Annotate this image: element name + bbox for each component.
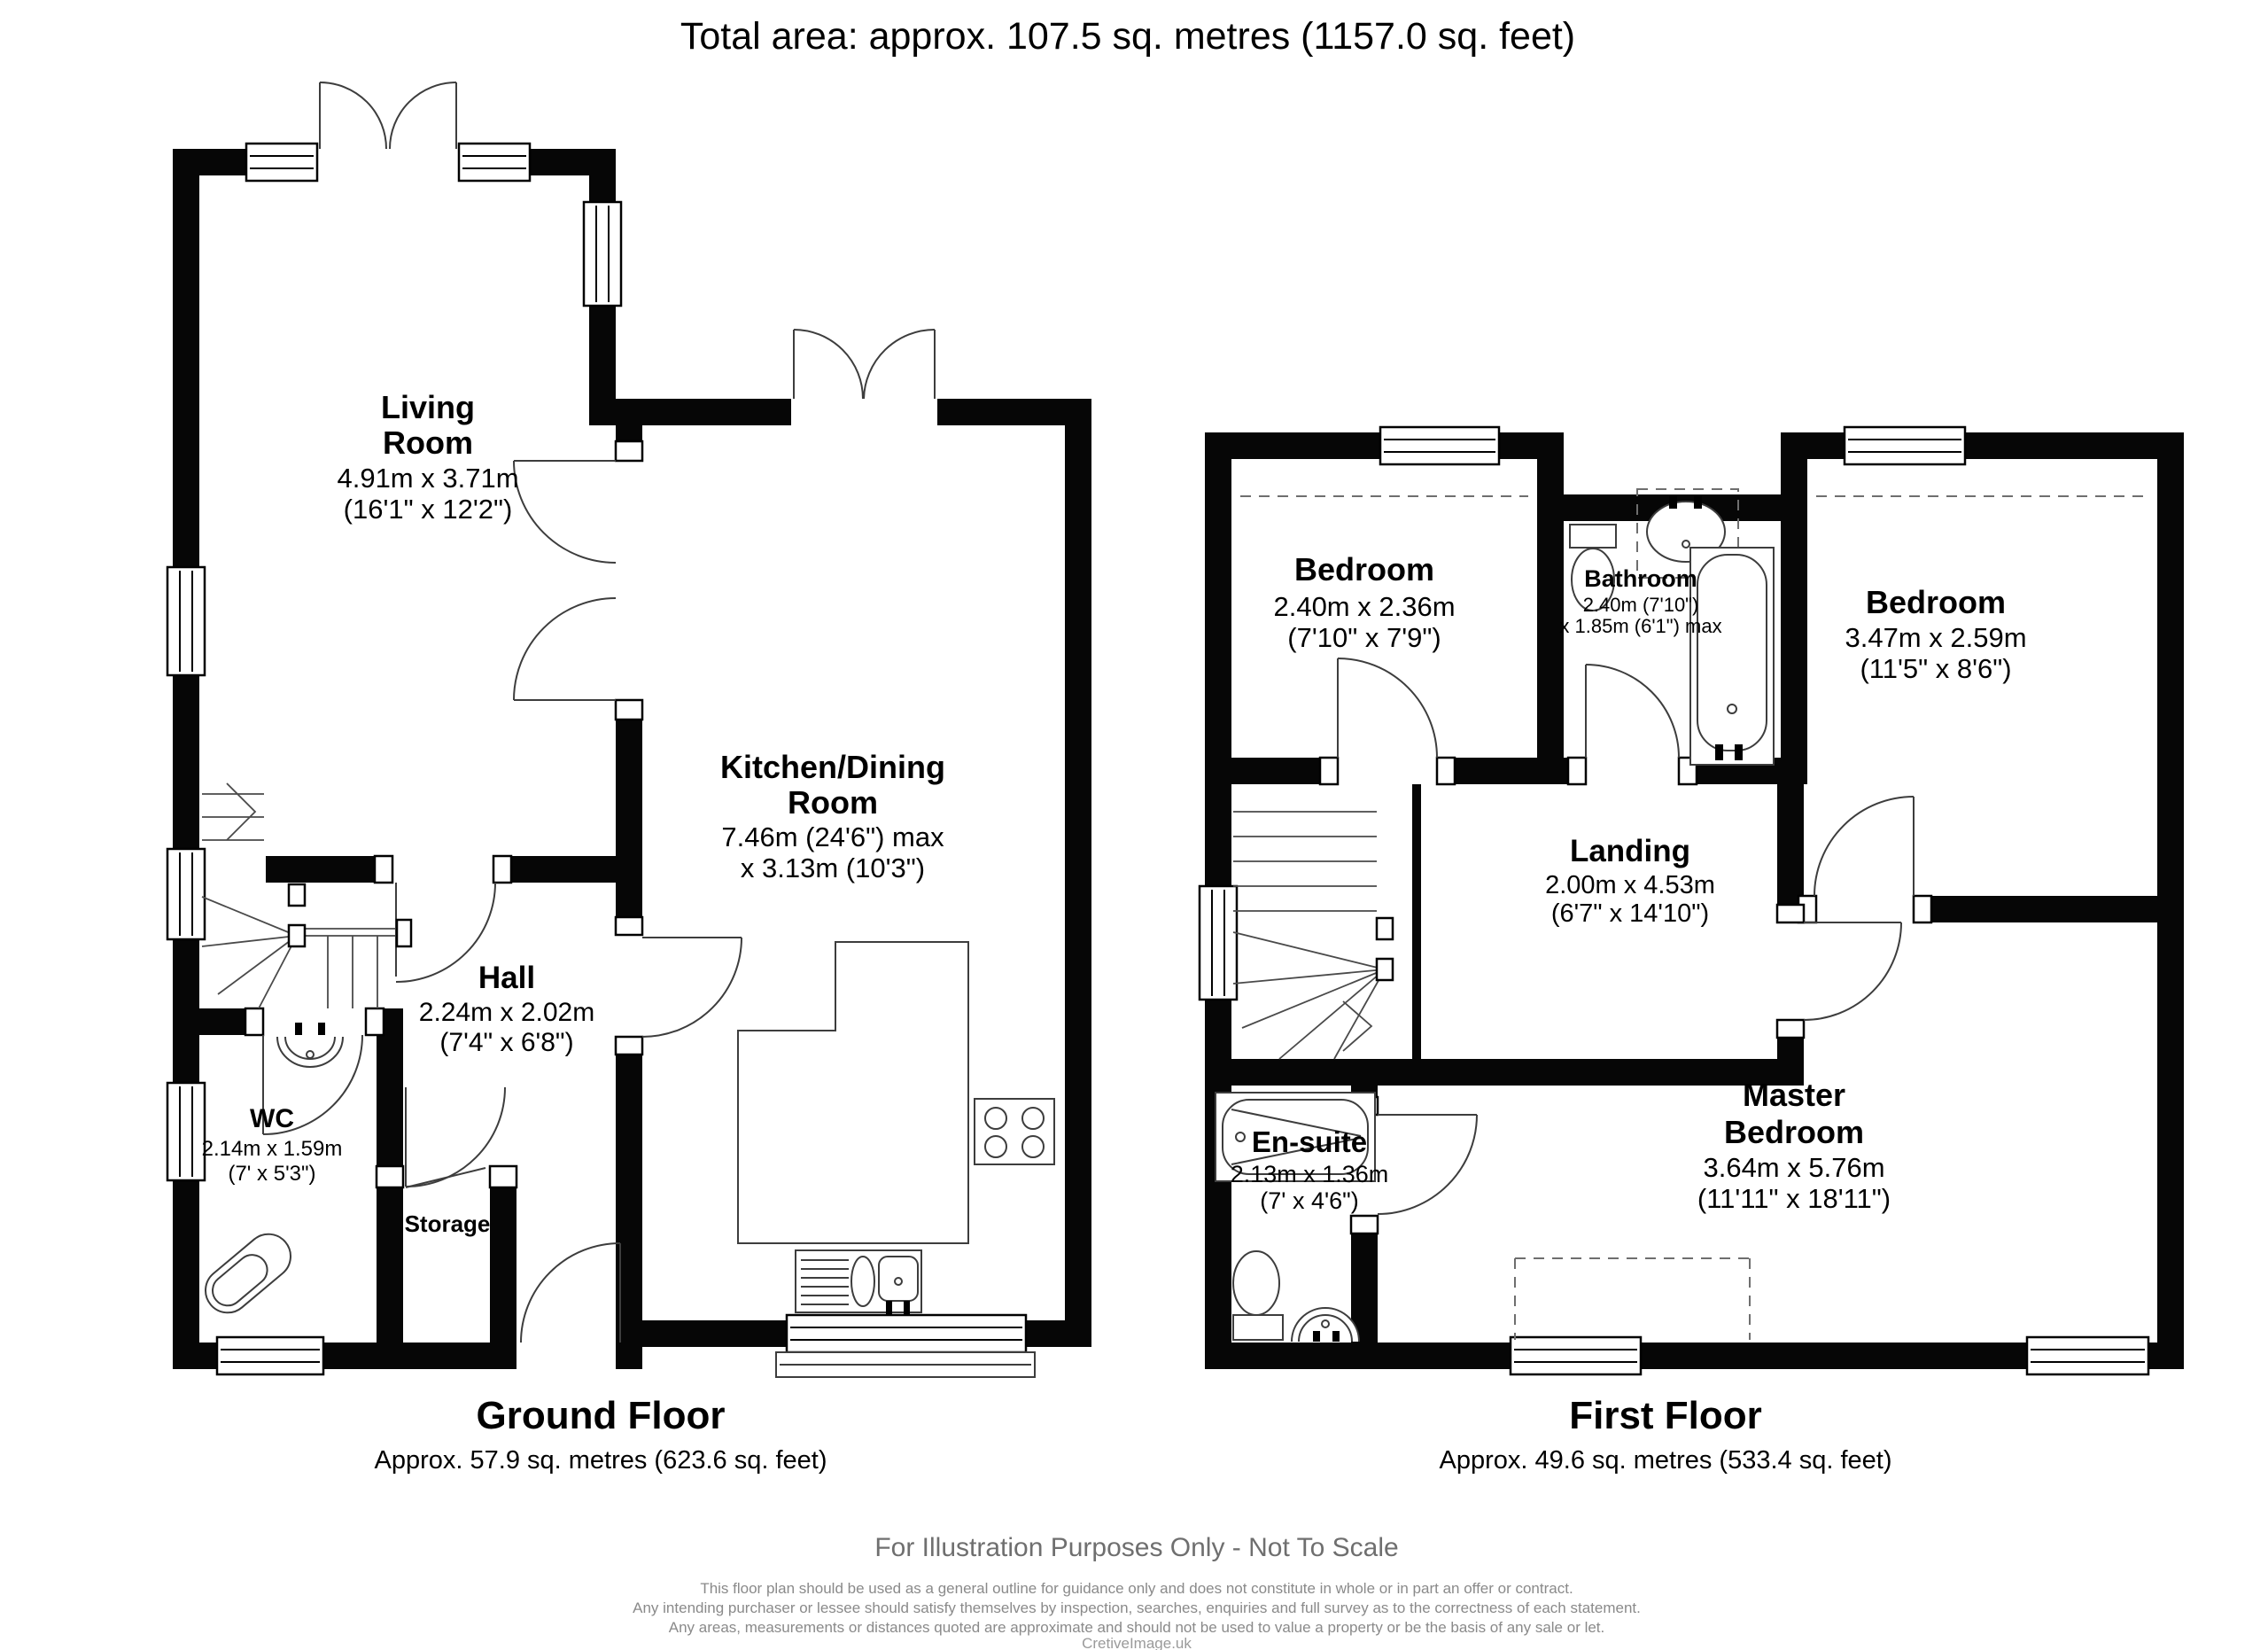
room-name: Bedroom bbox=[1866, 584, 2006, 620]
hall-label: Hall 2.24m x 2.02m (7'4" x 6'8") bbox=[419, 961, 594, 1057]
window bbox=[167, 567, 205, 675]
staircase-first bbox=[1233, 812, 1393, 1059]
floorplan-page: Total area: approx. 107.5 sq. metres (11… bbox=[0, 0, 2268, 1650]
wc-basin bbox=[277, 1023, 343, 1067]
living-room-label: Living Room 4.91m x 3.71m (16'1" x 12'2"… bbox=[337, 389, 518, 525]
room-dims-imperial: (11'5" x 8'6") bbox=[1860, 653, 2011, 684]
room-dims-imperial: (7' x 4'6") bbox=[1260, 1187, 1358, 1214]
room-name: Room bbox=[788, 784, 878, 821]
disclaimer-line: Any intending purchaser or lessee should… bbox=[633, 1599, 1641, 1616]
window bbox=[1200, 886, 1237, 1000]
window bbox=[167, 849, 205, 939]
room-name: Bedroom bbox=[1724, 1114, 1864, 1150]
window bbox=[167, 1083, 205, 1180]
room-dims-metric: 2.40m x 2.36m bbox=[1273, 591, 1455, 622]
illustration-notice: For Illustration Purposes Only - Not To … bbox=[874, 1533, 1398, 1562]
room-dims-metric: 2.13m x 1.36m bbox=[1231, 1161, 1389, 1187]
staircase-ground bbox=[202, 783, 411, 1008]
room-dims-imperial: x 1.85m (6'1") max bbox=[1559, 615, 1721, 637]
room-name: Kitchen/Dining bbox=[720, 749, 945, 785]
kitchen-island bbox=[738, 942, 968, 1243]
window bbox=[1511, 1337, 1641, 1374]
double-doors-living-kitchen bbox=[514, 441, 642, 720]
window bbox=[584, 202, 621, 306]
room-name: Landing bbox=[1570, 834, 1690, 868]
disclaimer-line: This floor plan should be used as a gene… bbox=[700, 1580, 1573, 1597]
bedroom-right-label: Bedroom 3.47m x 2.59m (11'5" x 8'6") bbox=[1845, 584, 2026, 684]
room-dims-metric: 2.00m x 4.53m bbox=[1545, 871, 1715, 899]
room-name: En-suite bbox=[1252, 1125, 1367, 1158]
landing-label: Landing 2.00m x 4.53m (6'7" x 14'10") bbox=[1545, 834, 1715, 928]
window bbox=[1380, 427, 1499, 464]
french-doors-kitchen bbox=[794, 330, 935, 399]
room-dims-imperial: (6'7" x 14'10") bbox=[1551, 899, 1709, 928]
window bbox=[2027, 1337, 2148, 1374]
floor-title: Ground Floor bbox=[476, 1394, 725, 1437]
kitchen-label: Kitchen/Dining Room 7.46m (24'6") max x … bbox=[720, 749, 945, 883]
room-dims-metric: 4.91m x 3.71m bbox=[337, 463, 518, 494]
floor-title: First Floor bbox=[1569, 1394, 1762, 1437]
door-bedroom-left bbox=[1320, 658, 1455, 784]
credit-watermark: CretiveImage.uk bbox=[1082, 1635, 1192, 1650]
french-doors-living-room bbox=[320, 82, 456, 149]
window bbox=[787, 1315, 1026, 1352]
kitchen-sink bbox=[796, 1250, 921, 1315]
window-sill bbox=[776, 1352, 1035, 1377]
room-dims-imperial: (7'4" x 6'8") bbox=[439, 1028, 573, 1057]
window bbox=[217, 1337, 323, 1374]
room-name: Master bbox=[1743, 1077, 1845, 1113]
disclaimer-line: Any areas, measurements or distances quo… bbox=[669, 1619, 1605, 1636]
bedroom-left-label: Bedroom 2.40m x 2.36m (7'10" x 7'9") bbox=[1273, 551, 1455, 653]
floor-area: Approx. 49.6 sq. metres (533.4 sq. feet) bbox=[1440, 1446, 1892, 1475]
room-dims-imperial: (7' x 5'3") bbox=[228, 1162, 315, 1186]
floor-area: Approx. 57.9 sq. metres (623.6 sq. feet) bbox=[375, 1446, 827, 1475]
room-dims-imperial: (7'10" x 7'9") bbox=[1287, 622, 1441, 653]
door-bathroom bbox=[1568, 665, 1697, 784]
room-name: Bedroom bbox=[1294, 551, 1434, 588]
room-dims-metric: 7.46m (24'6") max bbox=[721, 821, 944, 852]
window bbox=[246, 144, 317, 181]
ensuite-basin bbox=[1292, 1308, 1359, 1342]
wardrobe-dashed bbox=[1515, 1258, 1750, 1340]
room-name: Living bbox=[381, 389, 475, 425]
room-name: Room bbox=[383, 424, 473, 461]
room-name: Bathroom bbox=[1584, 565, 1697, 592]
window bbox=[1845, 427, 1965, 464]
storage-door bbox=[377, 1166, 517, 1187]
room-dims-metric: 2.40m (7'10") bbox=[1583, 594, 1699, 616]
door-master-bedroom bbox=[1777, 905, 1901, 1038]
ensuite-label: En-suite 2.13m x 1.36m (7' x 4'6") bbox=[1231, 1125, 1389, 1214]
room-dims-imperial: x 3.13m (10'3") bbox=[741, 852, 925, 883]
room-dims-imperial: (11'11" x 18'11") bbox=[1697, 1183, 1891, 1214]
ground-floor-plan: Living Room 4.91m x 3.71m (16'1" x 12'2"… bbox=[167, 82, 1091, 1475]
room-dims-imperial: (16'1" x 12'2") bbox=[344, 494, 513, 525]
room-dims-metric: 2.14m x 1.59m bbox=[202, 1137, 343, 1161]
room-name: WC bbox=[250, 1104, 294, 1133]
room-dims-metric: 3.47m x 2.59m bbox=[1845, 622, 2026, 653]
room-dims-metric: 2.24m x 2.02m bbox=[419, 998, 594, 1027]
bathroom-bath bbox=[1690, 548, 1774, 765]
window bbox=[459, 144, 530, 181]
total-area-title: Total area: approx. 107.5 sq. metres (11… bbox=[680, 15, 1575, 58]
first-floor-plan: Bedroom 2.40m x 2.36m (7'10" x 7'9") Bat… bbox=[1200, 427, 2184, 1475]
master-bedroom-label: Master Bedroom 3.64m x 5.76m (11'11" x 1… bbox=[1697, 1077, 1891, 1214]
storage-label: Storage bbox=[405, 1210, 491, 1237]
ground-floor-caption: Ground Floor Approx. 57.9 sq. metres (62… bbox=[375, 1394, 827, 1475]
door-hall-to-kitchen bbox=[616, 917, 742, 1055]
first-floor-caption: First Floor Approx. 49.6 sq. metres (533… bbox=[1440, 1394, 1892, 1475]
kitchen-hob bbox=[975, 1099, 1054, 1164]
front-door bbox=[521, 1243, 620, 1343]
wc-toilet bbox=[197, 1225, 299, 1321]
room-name: Hall bbox=[478, 961, 535, 995]
floorplan-drawing: Total area: approx. 107.5 sq. metres (11… bbox=[0, 0, 2268, 1650]
footer: For Illustration Purposes Only - Not To … bbox=[633, 1533, 1641, 1650]
room-dims-metric: 3.64m x 5.76m bbox=[1703, 1152, 1884, 1183]
door-bedroom-right bbox=[1798, 797, 1931, 922]
ensuite-toilet bbox=[1233, 1251, 1283, 1340]
